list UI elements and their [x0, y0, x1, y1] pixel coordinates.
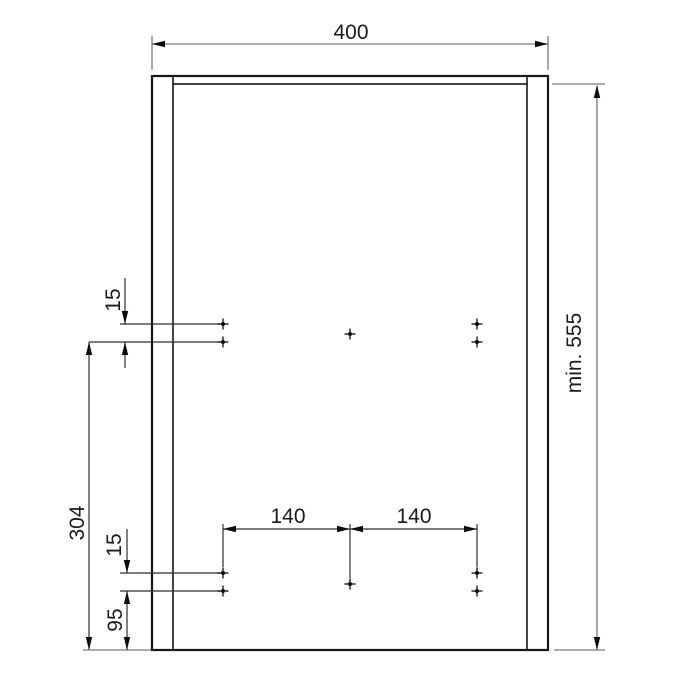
dim-label-bottom-hole-gap: 15: [103, 533, 126, 556]
dim-label-height: min. 555: [563, 313, 586, 394]
arrowhead-up: [124, 591, 130, 604]
dim-panel-height: min. 555: [552, 84, 605, 650]
dim-label-width: 400: [333, 21, 368, 44]
drawing-canvas: 400 min. 555 15 304: [0, 0, 700, 700]
arrowhead-right: [464, 526, 477, 532]
dim-label-hole-spacing-left: 140: [270, 505, 305, 528]
arrowhead-right: [337, 526, 350, 532]
drill-point-cross: [218, 319, 229, 330]
drill-point-cross: [345, 579, 356, 590]
arrowhead-down: [122, 311, 128, 324]
arrowhead-right: [535, 41, 548, 47]
arrowhead-down: [124, 560, 130, 573]
drill-point-cross: [218, 337, 229, 348]
upper-row-leader-lines: [89, 324, 220, 342]
dim-top-hole-gap: 15: [102, 278, 128, 368]
arrowhead-up: [594, 85, 600, 98]
drill-points-upper-row: [218, 319, 483, 348]
dim-label-bottom-edge-distance: 95: [104, 608, 127, 631]
arrowhead-up: [122, 342, 128, 355]
panel-drilling-diagram: 400 min. 555 15 304: [0, 0, 700, 700]
dim-label-top-hole-gap: 15: [102, 288, 125, 311]
arrowhead-left: [223, 526, 236, 532]
dim-hole-spacing: 140 140: [223, 505, 477, 578]
arrowhead-down: [124, 637, 130, 650]
arrowhead-left: [350, 526, 363, 532]
drill-point-cross: [472, 337, 483, 348]
dim-panel-width: 400: [152, 21, 548, 70]
drill-point-cross: [218, 568, 229, 579]
dim-bottom-hole-gap: 15: [103, 529, 130, 573]
drill-point-cross: [472, 319, 483, 330]
drill-point-cross: [345, 329, 356, 340]
arrowhead-up: [86, 342, 92, 355]
drill-point-cross: [218, 586, 229, 597]
drill-point-cross: [472, 586, 483, 597]
arrowhead-left: [152, 41, 165, 47]
drill-point-cross: [472, 568, 483, 579]
dim-label-row-span: 304: [66, 505, 89, 540]
dim-bottom-edge-distance: 95: [104, 591, 130, 650]
dim-row-span: 304: [66, 342, 92, 650]
arrowhead-down: [86, 637, 92, 650]
dim-label-hole-spacing-right: 140: [396, 505, 431, 528]
arrowhead-down: [594, 637, 600, 650]
